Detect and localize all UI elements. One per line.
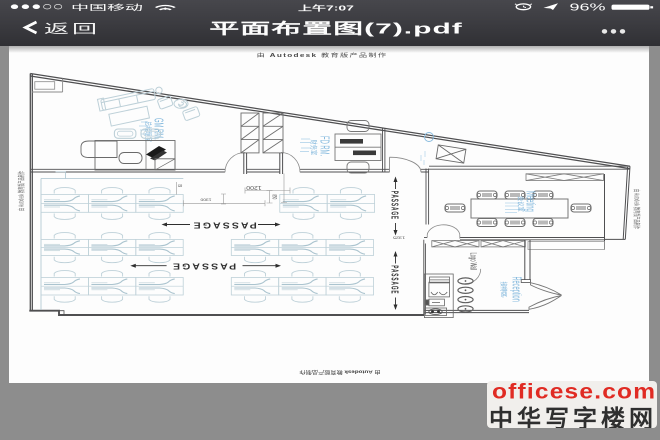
svg-text:上午7:07: 上午7:07 xyxy=(298,3,354,12)
svg-text:1300: 1300 xyxy=(200,198,212,202)
svg-text:1325: 1325 xyxy=(392,235,405,240)
svg-text:Logo Wall: Logo Wall xyxy=(468,253,477,271)
svg-text:85: 85 xyxy=(178,184,182,188)
svg-text:接待区: 接待区 xyxy=(499,282,508,298)
svg-text:财务室: 财务室 xyxy=(309,140,318,156)
svg-text:返回: 返回 xyxy=(44,22,100,36)
svg-text:PASSAGE: PASSAGE xyxy=(171,261,236,271)
svg-text:850: 850 xyxy=(270,194,278,199)
svg-text:1200: 1200 xyxy=(246,184,262,190)
svg-text:由 Autodesk 教育版产品制作: 由 Autodesk 教育版产品制作 xyxy=(257,52,388,59)
svg-text:96%: 96% xyxy=(569,2,605,13)
svg-text:由 Autodesk 教育版产品制作: 由 Autodesk 教育版产品制作 xyxy=(299,369,381,376)
svg-text:PASSAGE: PASSAGE xyxy=(389,191,401,220)
svg-text:中国移动: 中国移动 xyxy=(71,4,143,12)
svg-text:Reception: Reception xyxy=(509,277,523,302)
svg-text:PASSAGE: PASSAGE xyxy=(389,265,401,294)
svg-text:PASSAGE: PASSAGE xyxy=(192,220,257,230)
svg-text:平面布置图(7).pdf: 平面布置图(7).pdf xyxy=(209,20,463,38)
svg-text:FD RM.: FD RM. xyxy=(317,136,331,156)
